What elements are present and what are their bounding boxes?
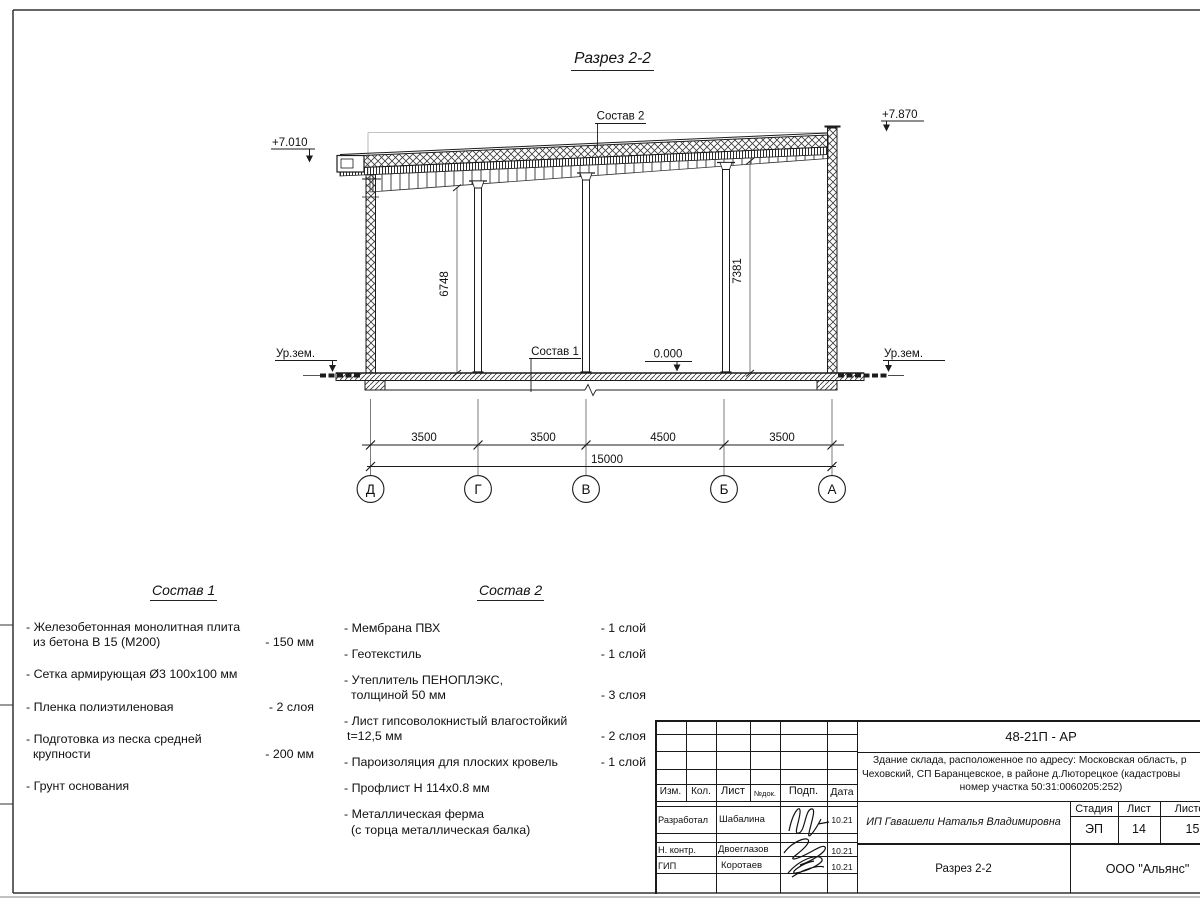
dim-segment-3: 4500: [650, 432, 676, 444]
column: [577, 173, 595, 373]
composition2-list: - Мембрана ПВХ - 1 слой - Геотекстиль - …: [344, 621, 646, 849]
ground-level-left-label: Ур.зем.: [276, 348, 315, 360]
height-dim-7381: 7381: [732, 258, 744, 284]
row-role: Н. контр.: [658, 845, 696, 855]
document-number: 48-21П - АР: [857, 729, 1200, 744]
elevation-arrow: [883, 125, 890, 132]
list-item: - Пленка полиэтиленовая - 2 слоя: [26, 700, 314, 715]
list-item: - Профлист Н 114х0.8 мм: [344, 781, 646, 796]
company-name: ООО "Альянс": [1070, 844, 1200, 893]
col-header-ndok: №док.: [750, 789, 780, 798]
list-item: - Пароизоляция для плоских кровель - 1 с…: [344, 755, 646, 770]
section-name: Разрез 2-2: [857, 844, 1070, 893]
client-name: ИП Гавашели Наталья Владимировна: [857, 801, 1070, 843]
sheets-total: 15: [1160, 822, 1200, 836]
ground-level-right-label: Ур.зем.: [884, 348, 923, 360]
list-item: - Грунт основания: [26, 779, 314, 794]
list-item: - Металлическая ферма(с торца металличес…: [344, 807, 646, 837]
list-item: - Утеплитель ПЕНОПЛЭКС,толщиной 50 мм - …: [344, 673, 646, 703]
columns: [469, 163, 735, 374]
axis-label-v: В: [581, 482, 590, 497]
col-header-podp: Подп.: [780, 785, 827, 797]
height-dim-6748: 6748: [439, 271, 451, 297]
right-footing: [817, 381, 837, 391]
col-header-data: Дата: [827, 786, 857, 798]
row-date: 10.21: [827, 815, 857, 825]
list-item: - Железобетонная монолитная плитаиз бето…: [26, 620, 314, 650]
dim-segment-1: 3500: [411, 432, 437, 444]
elevation-right-label: +7.870: [882, 109, 918, 121]
row-name: Шабалина: [719, 814, 765, 825]
left-footing: [365, 381, 385, 391]
list-item: - Геотекстиль - 1 слой: [344, 647, 646, 662]
stage-label: Стадия: [1070, 803, 1118, 815]
composition1-heading: Состав 1: [150, 582, 217, 601]
axis-label-g: Г: [474, 482, 482, 497]
composition2-leader-label: Состав 2: [597, 111, 645, 123]
page-title: Разрез 2-2: [540, 50, 685, 71]
composition1-list: - Железобетонная монолитная плитаиз бето…: [26, 620, 314, 811]
composition2-heading: Состав 2: [477, 582, 544, 601]
col-header-kol: Кол.: [686, 786, 716, 797]
dimension-chain: 3500 3500 4500 3500 15000: [362, 399, 844, 475]
project-description-line2: Чеховский, СП Баранцевское, в районе д.Л…: [862, 769, 1180, 780]
col-header-list: Лист: [716, 785, 750, 797]
row-role: ГИП: [658, 861, 676, 871]
project-description-line3: номер участка 50:31:0060205:252): [857, 782, 1200, 793]
project-description-line1: Здание склада, расположенное по адресу: …: [873, 755, 1187, 766]
sheet-number: 14: [1118, 822, 1160, 836]
right-wall: [828, 128, 838, 373]
stage-value: ЭП: [1070, 822, 1118, 836]
dim-total: 15000: [591, 454, 623, 466]
row-name: Коротаев: [721, 860, 762, 871]
axis-label-d: Д: [366, 482, 375, 497]
row-name: Двоеглазов: [718, 844, 769, 855]
height-dimensions: 6748 7381: [439, 158, 754, 377]
axis-label-a: А: [827, 482, 836, 497]
floor-slab: [303, 373, 904, 396]
row-role: Разработал: [658, 815, 708, 825]
signature-icon: [778, 835, 834, 879]
sheet-label: Лист: [1118, 803, 1160, 815]
drawing-sheet: { "drawing": { "title": "Разрез 2-2", "c…: [0, 0, 1200, 900]
dim-segment-2: 3500: [530, 432, 556, 444]
elevation-arrow: [306, 156, 313, 163]
list-item: - Лист гипсоволокнистый влагостойкийt=12…: [344, 714, 646, 744]
axis-bubbles: Д Г В Б А: [357, 476, 845, 503]
axis-label-b: Б: [720, 482, 729, 497]
break-symbol: [585, 385, 596, 396]
column: [469, 181, 487, 373]
list-item: - Подготовка из песка среднейкрупности -…: [26, 732, 314, 762]
dim-segment-4: 3500: [769, 432, 795, 444]
left-wall: [366, 175, 376, 373]
list-item: - Мембрана ПВХ - 1 слой: [344, 621, 646, 636]
composition1-leader-label: Состав 1: [531, 346, 579, 358]
elevation-left-label: +7.010: [272, 137, 308, 149]
zero-elevation-label: 0.000: [654, 349, 683, 361]
col-header-izm: Изм.: [655, 786, 686, 797]
sheets-label: Листов: [1160, 803, 1200, 815]
list-item: - Сетка армирующая Ø3 100х100 мм: [26, 667, 314, 682]
